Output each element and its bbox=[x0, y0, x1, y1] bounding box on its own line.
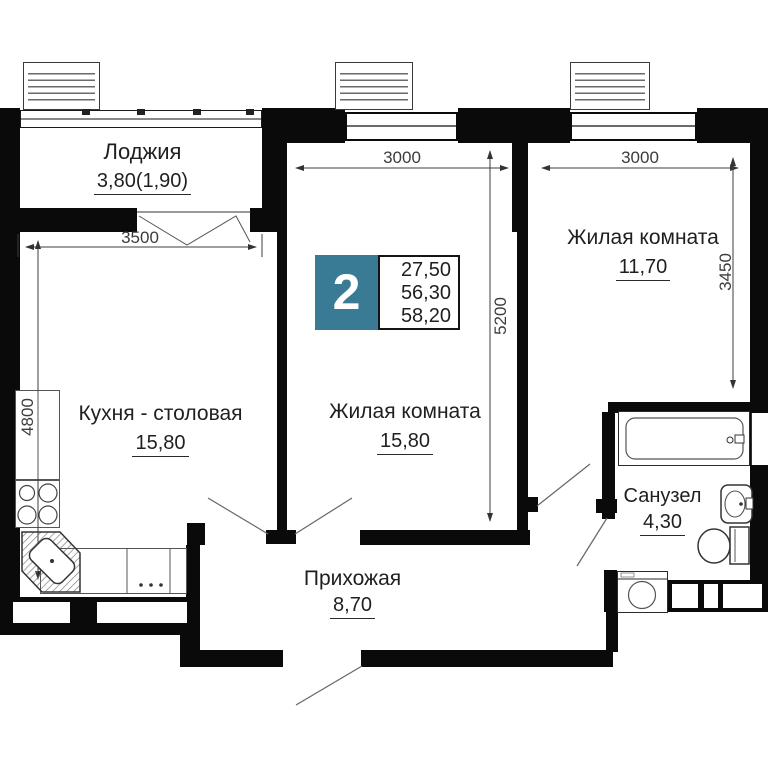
floor-plan: 2 27,50 56,30 58,20 Лоджия 3,80(1,90) Ку… bbox=[0, 0, 768, 768]
wall-niche bbox=[97, 602, 187, 623]
wall-segment bbox=[458, 108, 570, 143]
room-label-kitchen: Кухня - столовая 15,80 bbox=[58, 401, 263, 456]
room-label-living-center: Жилая комната 15,80 bbox=[300, 399, 510, 454]
wall-niche bbox=[704, 584, 718, 608]
wall-segment bbox=[0, 108, 20, 635]
wall-niche bbox=[672, 584, 698, 608]
wall-segment bbox=[517, 497, 538, 512]
room-area: 15,80 bbox=[58, 430, 263, 456]
stove-icon bbox=[15, 480, 60, 528]
room-area: 15,80 bbox=[300, 428, 510, 454]
wall-gap bbox=[751, 413, 768, 465]
area-value: 58,20 bbox=[380, 305, 451, 328]
room-area: 4,30 bbox=[605, 509, 720, 535]
wall-segment bbox=[187, 523, 205, 545]
kitchen-counter bbox=[40, 548, 187, 594]
wall-segment bbox=[697, 108, 768, 143]
wall-segment bbox=[604, 570, 617, 612]
area-value: 27,50 bbox=[380, 259, 451, 282]
wall-segment bbox=[360, 530, 530, 545]
wall-segment bbox=[266, 530, 296, 544]
window bbox=[570, 112, 697, 141]
ac-unit-icon bbox=[570, 62, 650, 110]
window bbox=[345, 112, 458, 141]
room-name: Санузел bbox=[605, 483, 720, 509]
ac-unit-icon bbox=[23, 62, 100, 110]
wall-segment bbox=[606, 610, 618, 652]
wall-segment bbox=[200, 650, 283, 667]
room-name: Лоджия bbox=[40, 139, 245, 165]
wall-segment bbox=[750, 143, 768, 402]
room-label-loggia: Лоджия 3,80(1,90) bbox=[40, 139, 245, 194]
wall-segment bbox=[262, 108, 345, 143]
bathtub bbox=[618, 411, 750, 466]
dim-label-3000-right: 3000 bbox=[600, 148, 680, 168]
room-name: Кухня - столовая bbox=[58, 401, 263, 427]
wall-segment bbox=[262, 143, 287, 210]
dim-label-4800: 4800 bbox=[18, 387, 36, 447]
area-values-box: 27,50 56,30 58,20 bbox=[378, 255, 460, 330]
wall-segment bbox=[361, 650, 613, 667]
dim-label-3000-left: 3000 bbox=[362, 148, 442, 168]
room-name: Жилая комната bbox=[300, 399, 510, 425]
dim-label-3500: 3500 bbox=[100, 228, 180, 248]
wall-niche bbox=[723, 584, 762, 608]
room-area: 3,80(1,90) bbox=[40, 168, 245, 194]
dim-label-3450: 3450 bbox=[716, 242, 734, 302]
wall-segment bbox=[277, 210, 287, 532]
loggia-glazing bbox=[20, 110, 262, 128]
washing-machine-icon bbox=[617, 571, 668, 613]
ac-unit-icon bbox=[335, 62, 413, 110]
wall-niche bbox=[13, 602, 70, 623]
wall-segment bbox=[180, 635, 200, 667]
dim-label-5200: 5200 bbox=[491, 286, 509, 346]
bath-sink-icon bbox=[721, 485, 753, 523]
room-area: 8,70 bbox=[280, 592, 425, 618]
wall-segment bbox=[512, 143, 528, 232]
room-label-hallway: Прихожая 8,70 bbox=[280, 566, 425, 618]
room-label-bathroom: Санузел 4,30 bbox=[605, 483, 720, 535]
room-name: Прихожая bbox=[280, 566, 425, 592]
rooms-count-badge: 2 bbox=[315, 255, 378, 330]
area-value: 56,30 bbox=[380, 282, 451, 305]
